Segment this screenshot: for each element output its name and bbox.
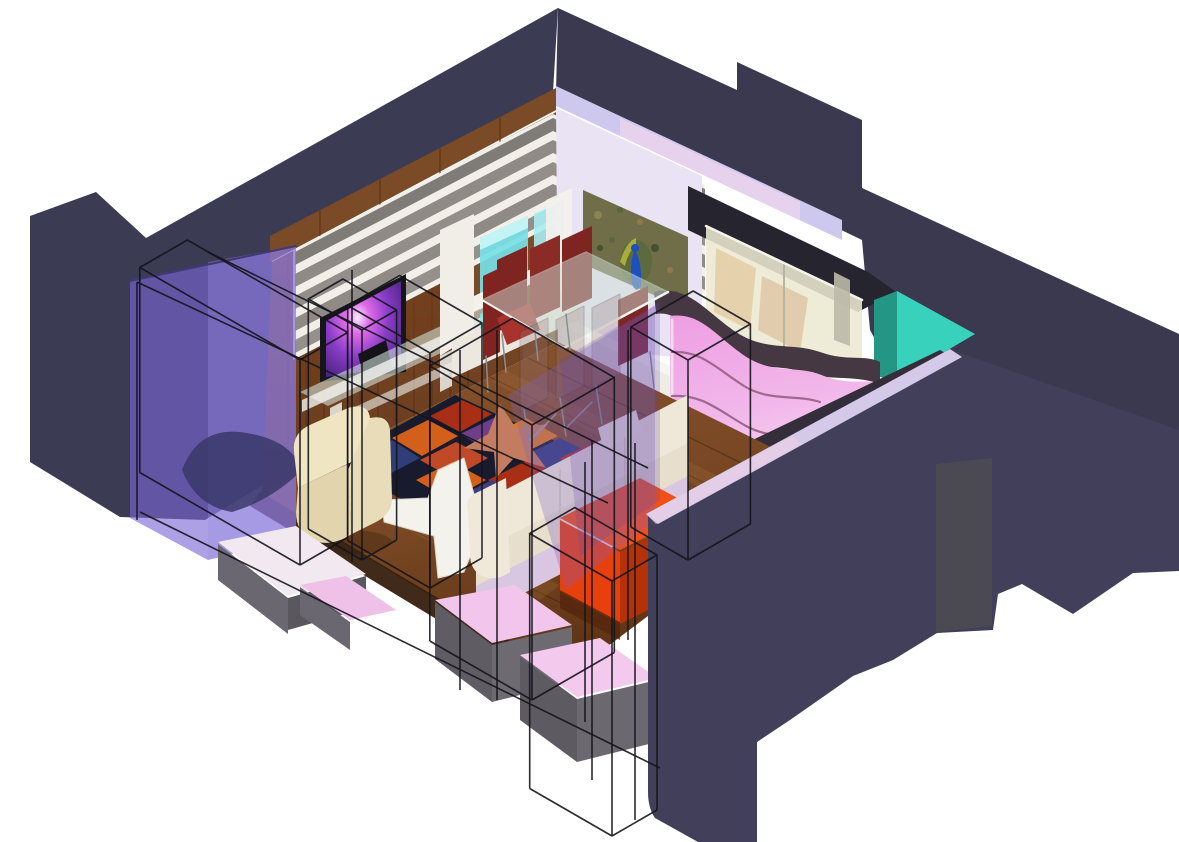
door-opening	[936, 458, 992, 632]
isometric-room-cutaway	[0, 0, 1179, 842]
peacock-art-speckle-1	[594, 211, 602, 219]
wardrobe-frame-right	[834, 272, 850, 346]
peacock-art-speckle-6	[597, 245, 603, 251]
purple-glass-wall-light	[208, 246, 296, 560]
peacock-art-speckle-3	[651, 244, 659, 252]
peacock-art-speckle-2	[609, 237, 615, 243]
peacock-art-speckle-5	[637, 219, 643, 225]
peacock-art-speckle-4	[667, 267, 673, 273]
peacock-head	[631, 244, 639, 252]
room-render-svg	[0, 0, 1179, 842]
peacock-art-speckle-8	[617, 207, 623, 213]
